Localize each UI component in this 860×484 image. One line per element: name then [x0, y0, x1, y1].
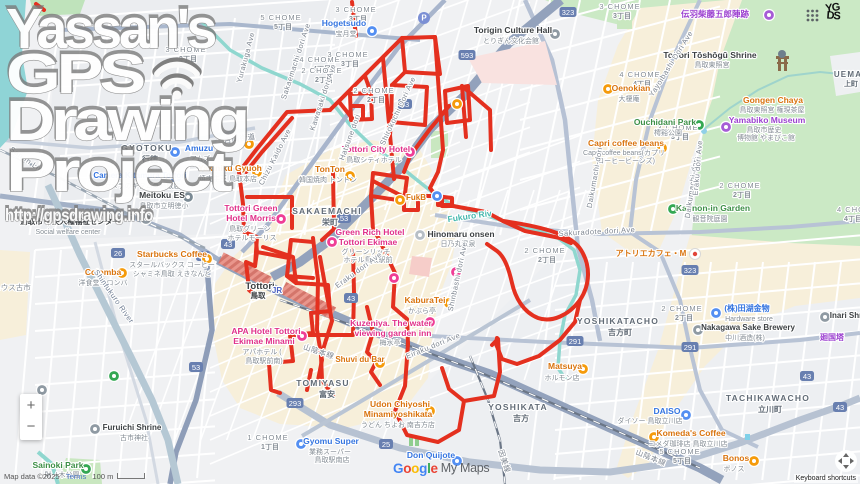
svg-text:Inari Shr: Inari Shr [830, 311, 860, 320]
svg-text:KaburaTei: KaburaTei [405, 295, 446, 305]
svg-text:ハウス古市: ハウス古市 [0, 282, 31, 292]
svg-text:43: 43 [347, 294, 355, 303]
svg-text:UEMA: UEMA [834, 70, 860, 79]
svg-text:アトリエカフェ・M: アトリエカフェ・M [616, 249, 687, 258]
svg-text:2丁目: 2丁目 [538, 256, 556, 264]
svg-text:鳥取市歴史: 鳥取市歴史 [747, 125, 782, 134]
svg-text:Shuvi du Bar: Shuvi du Bar [335, 355, 384, 364]
svg-text:5 CHOME: 5 CHOME [659, 447, 700, 456]
svg-text:廻国塔: 廻国塔 [819, 332, 845, 342]
svg-text:韓国焼肉 トントン: 韓国焼肉 トントン [299, 175, 357, 184]
svg-text:立川町: 立川町 [758, 404, 782, 414]
svg-text:Gyomu Super: Gyomu Super [303, 436, 359, 446]
svg-text:4 CHOME: 4 CHOME [619, 70, 660, 79]
svg-text:Hogetsudo: Hogetsudo [322, 18, 366, 28]
svg-text:3丁目: 3丁目 [341, 60, 359, 68]
svg-text:Hinomaru onsen: Hinomaru onsen [427, 229, 494, 239]
svg-text:Yamabiko Museum: Yamabiko Museum [729, 115, 806, 125]
svg-text:富安: 富安 [319, 389, 335, 399]
svg-text:2丁目: 2丁目 [675, 314, 693, 322]
svg-text:スタールバックス コーヒー: スタールバックス コーヒー [129, 260, 215, 269]
svg-text:Gongen Chaya: Gongen Chaya [743, 95, 803, 105]
svg-text:Komeda's Coffee: Komeda's Coffee [656, 428, 725, 438]
svg-text:3 CHOME: 3 CHOME [599, 2, 640, 11]
svg-text:Sainoki Park: Sainoki Park [32, 460, 83, 470]
svg-text:Udon Chiyoshi: Udon Chiyoshi [370, 399, 430, 409]
svg-text:1 CHOME: 1 CHOME [247, 433, 288, 442]
svg-text:Ouchidani Park: Ouchidani Park [634, 117, 697, 127]
svg-text:コメダ珈琲店 鳥取立川店: コメダ珈琲店 鳥取立川店 [649, 439, 728, 448]
svg-text:26: 26 [114, 249, 122, 258]
svg-text:グリーンリッチ: グリーンリッチ [342, 247, 391, 256]
svg-text:TOMIYASU: TOMIYASU [296, 378, 350, 388]
svg-text:Don Quijote: Don Quijote [407, 450, 455, 460]
svg-text:2 CHOME: 2 CHOME [353, 86, 394, 95]
svg-text:291: 291 [684, 343, 697, 352]
svg-text:43: 43 [803, 372, 811, 381]
svg-text:古市神社: 古市神社 [120, 433, 148, 442]
svg-text:ダイソー 鳥取立川店: ダイソー 鳥取立川店 [618, 416, 683, 425]
svg-text:Tottori City Hotel: Tottori City Hotel [342, 144, 410, 154]
svg-text:吉方町: 吉方町 [608, 327, 632, 337]
svg-text:2 CHOME: 2 CHOME [719, 181, 760, 190]
svg-text:梅水亭: 梅水亭 [380, 338, 401, 347]
svg-text:コーヒービーンズ): コーヒービーンズ) [597, 156, 655, 165]
svg-text:2 CHOME: 2 CHOME [524, 246, 565, 255]
svg-text:伝羽柴藤五郎陣跡: 伝羽柴藤五郎陣跡 [681, 9, 750, 19]
svg-text:鳥取東照宮 権現茶屋: 鳥取東照宮 権現茶屋 [740, 105, 805, 114]
svg-text:YOSHIKATA: YOSHIKATA [488, 402, 548, 412]
svg-text:大榎庵: 大榎庵 [619, 94, 640, 103]
svg-text:293: 293 [289, 399, 302, 408]
svg-text:Green Rich Hotel: Green Rich Hotel [336, 227, 405, 237]
svg-text:SAKAEMACHI: SAKAEMACHI [292, 206, 362, 216]
svg-text:吉方: 吉方 [513, 413, 529, 423]
svg-text:Capri coffee beans: Capri coffee beans [588, 138, 664, 148]
svg-text:うどん ちよお 南吉方店: うどん ちよお 南吉方店 [361, 420, 435, 429]
svg-text:アパホテル (: アパホテル ( [242, 348, 282, 356]
svg-text:Minamiyoshikata: Minamiyoshikata [364, 409, 433, 419]
svg-text:上町: 上町 [844, 79, 858, 88]
svg-text:中川酒造(株): 中川酒造(株) [725, 333, 765, 342]
svg-text:Ekimae Minami: Ekimae Minami [233, 336, 294, 346]
svg-text:鳥取シティホテル: 鳥取シティホテル [346, 155, 402, 164]
svg-text:TonTon: TonTon [315, 164, 345, 174]
svg-text:シャミネ鳥取 えきなんど: シャミネ鳥取 えきなんど [133, 269, 212, 278]
svg-text:Starbucks Coffee: Starbucks Coffee [137, 249, 207, 259]
svg-text:Furuichi Shrine: Furuichi Shrine [103, 423, 162, 432]
svg-text:25: 25 [382, 440, 390, 449]
svg-text:593: 593 [461, 51, 474, 60]
svg-text:APA Hotel Tottori: APA Hotel Tottori [231, 326, 300, 336]
svg-text:業務スーパー: 業務スーパー [309, 447, 351, 456]
svg-text:323: 323 [684, 266, 697, 275]
svg-text:http://gpsdrawing.info: http://gpsdrawing.info [5, 205, 153, 225]
svg-text:博物館 やまびこ館: 博物館 やまびこ館 [737, 133, 795, 142]
svg-text:2丁目: 2丁目 [367, 96, 385, 104]
svg-text:2 CHOME: 2 CHOME [661, 304, 702, 313]
svg-text:3 CHOME: 3 CHOME [335, 5, 376, 14]
svg-text:鳥取駅前南): 鳥取駅前南) [245, 356, 282, 365]
svg-text:日乃丸温泉: 日乃丸温泉 [441, 239, 476, 248]
svg-text:Oenokian: Oenokian [612, 83, 651, 93]
svg-text:viewing garden inn: viewing garden inn [355, 328, 432, 338]
svg-text:かぶら亭: かぶら亭 [408, 306, 436, 315]
svg-text:観音院庭園: 観音院庭園 [693, 214, 728, 223]
svg-text:ボノス: ボノス [724, 465, 745, 473]
svg-text:Hardware store: Hardware store [725, 316, 773, 323]
svg-text:53: 53 [192, 363, 200, 372]
svg-text:とりぎん文化会館: とりぎん文化会館 [483, 36, 539, 45]
svg-text:YOSHIKATACHO: YOSHIKATACHO [577, 316, 659, 326]
svg-text:43: 43 [836, 403, 844, 412]
svg-text:ホルモン店: ホルモン店 [545, 373, 580, 382]
svg-text:Matsuya: Matsuya [548, 361, 582, 371]
svg-text:P: P [421, 14, 427, 23]
svg-text:鳥取駅南店: 鳥取駅南店 [315, 455, 350, 464]
svg-text:宝月堂: 宝月堂 [336, 29, 357, 38]
svg-text:Project: Project [6, 140, 233, 204]
svg-text:4 CHO: 4 CHO [837, 205, 860, 214]
svg-text:鳥取東照宮: 鳥取東照宮 [695, 60, 730, 69]
svg-text:Bonos: Bonos [723, 453, 750, 463]
svg-text:TACHIKAWACHO: TACHIKAWACHO [726, 393, 810, 403]
svg-text:Nakagawa Sake Brewery: Nakagawa Sake Brewery [701, 323, 795, 332]
svg-text:樗谿公園: 樗谿公園 [654, 128, 682, 137]
svg-text:5丁目: 5丁目 [673, 457, 691, 465]
svg-text:鳥取: 鳥取 [251, 290, 266, 300]
svg-text:Tottori Ekimae: Tottori Ekimae [339, 237, 398, 247]
svg-text:323: 323 [562, 8, 575, 17]
svg-text:栄町: 栄町 [321, 217, 338, 227]
svg-text:Kuzeniya. The water: Kuzeniya. The water [350, 318, 432, 328]
svg-text:291: 291 [569, 337, 582, 346]
svg-text:(株)田湖金物: (株)田湖金物 [724, 303, 769, 313]
svg-text:4丁目: 4丁目 [844, 215, 860, 223]
svg-text:1丁目: 1丁目 [261, 443, 279, 451]
svg-text:Torigin Culture Hall: Torigin Culture Hall [474, 25, 552, 35]
svg-text:3 CHOME: 3 CHOME [327, 50, 368, 59]
svg-text:3丁目: 3丁目 [613, 12, 631, 20]
svg-text:2丁目: 2丁目 [733, 191, 751, 199]
svg-text:FukB: FukB [406, 193, 426, 202]
svg-text:DAISO: DAISO [654, 406, 681, 416]
svg-text:JR: JR [272, 286, 282, 295]
